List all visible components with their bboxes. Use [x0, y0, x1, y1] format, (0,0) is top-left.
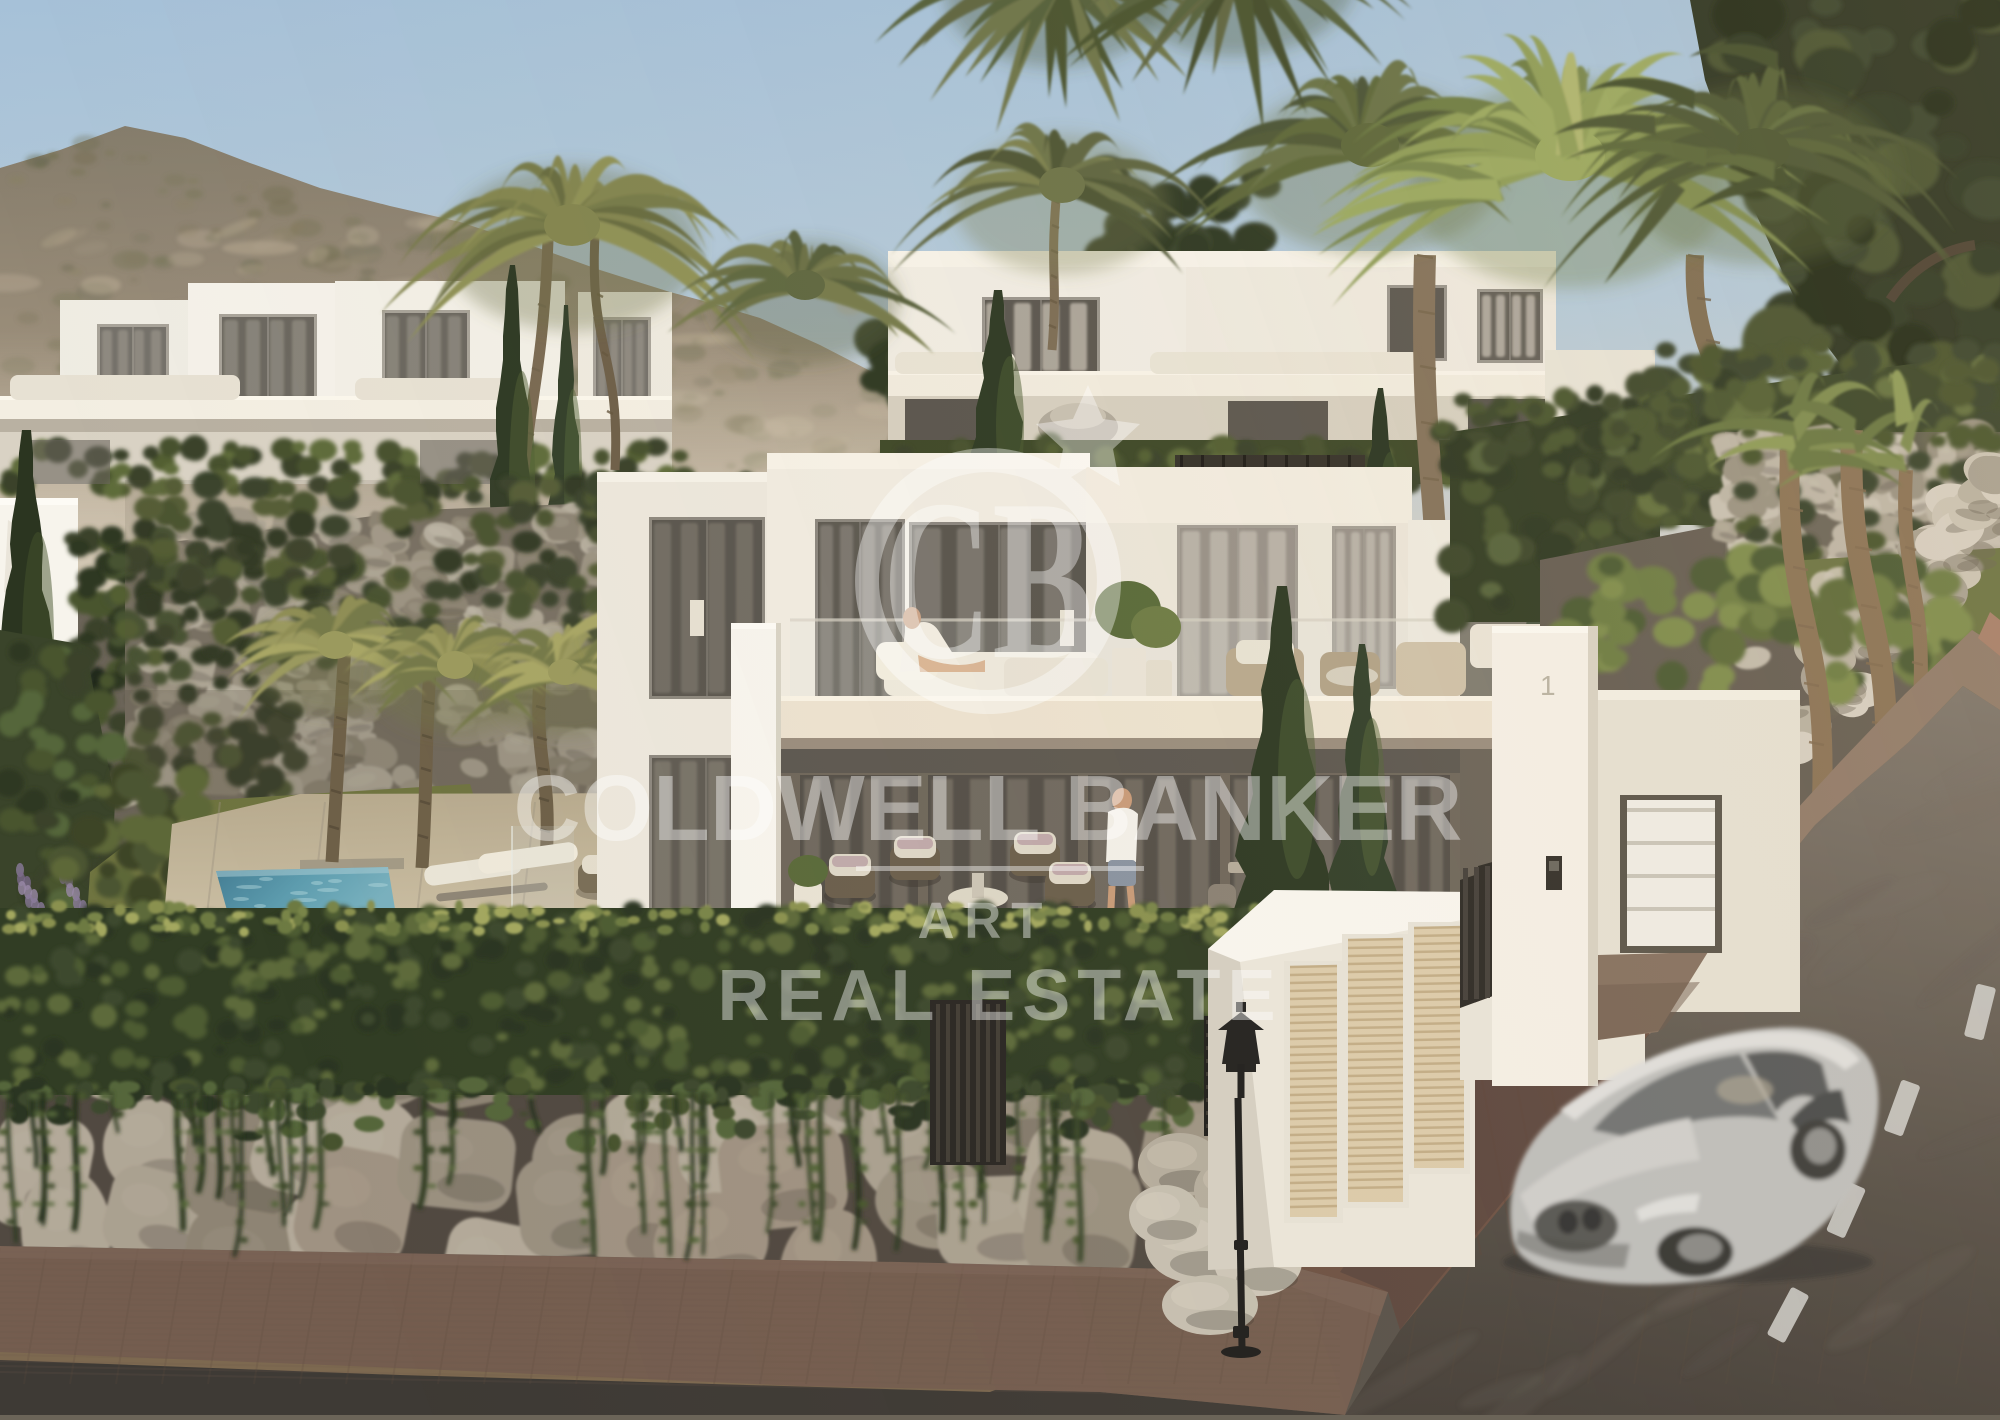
svg-text:COLDWELL BANKER: COLDWELL BANKER	[514, 756, 1463, 860]
svg-text:ART: ART	[918, 892, 1053, 949]
svg-text:CB: CB	[883, 453, 1094, 708]
svg-text:REAL ESTATE: REAL ESTATE	[717, 956, 1282, 1036]
